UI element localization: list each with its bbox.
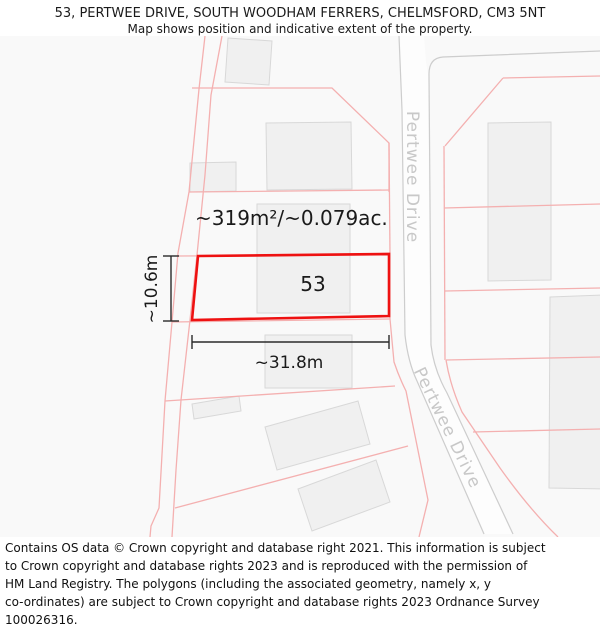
footer-line: co-ordinates) are subject to Crown copyr… (5, 593, 597, 611)
footer-line: Contains OS data © Crown copyright and d… (5, 539, 597, 557)
page-title: 53, PERTWEE DRIVE, SOUTH WOODHAM FERRERS… (0, 6, 600, 22)
building (190, 162, 236, 192)
road-label-upper: Pertwee Drive (402, 111, 422, 243)
building (549, 295, 600, 489)
footer-line: to Crown copyright and database rights 2… (5, 557, 597, 575)
building (266, 122, 352, 190)
width-dimension-label: ~31.8m (255, 353, 324, 373)
property-map-page: 53, PERTWEE DRIVE, SOUTH WOODHAM FERRERS… (0, 0, 600, 625)
building (488, 122, 551, 281)
area-label: ~319m²/~0.079ac. (195, 206, 388, 230)
building (225, 38, 272, 85)
height-dimension-label: ~10.6m (142, 255, 162, 324)
footer-line: 100026316. (5, 611, 597, 625)
map-container: ~319m²/~0.079ac. 53 ~31.8m ~10.6m Pertwe… (0, 36, 600, 537)
header: 53, PERTWEE DRIVE, SOUTH WOODHAM FERRERS… (0, 0, 600, 37)
footer-line: HM Land Registry. The polygons (includin… (5, 575, 597, 593)
footer-copyright: Contains OS data © Crown copyright and d… (5, 539, 597, 625)
map-canvas[interactable]: ~319m²/~0.079ac. 53 ~31.8m ~10.6m Pertwe… (0, 36, 600, 537)
page-subtitle: Map shows position and indicative extent… (0, 22, 600, 37)
plot-number-label: 53 (300, 272, 325, 296)
